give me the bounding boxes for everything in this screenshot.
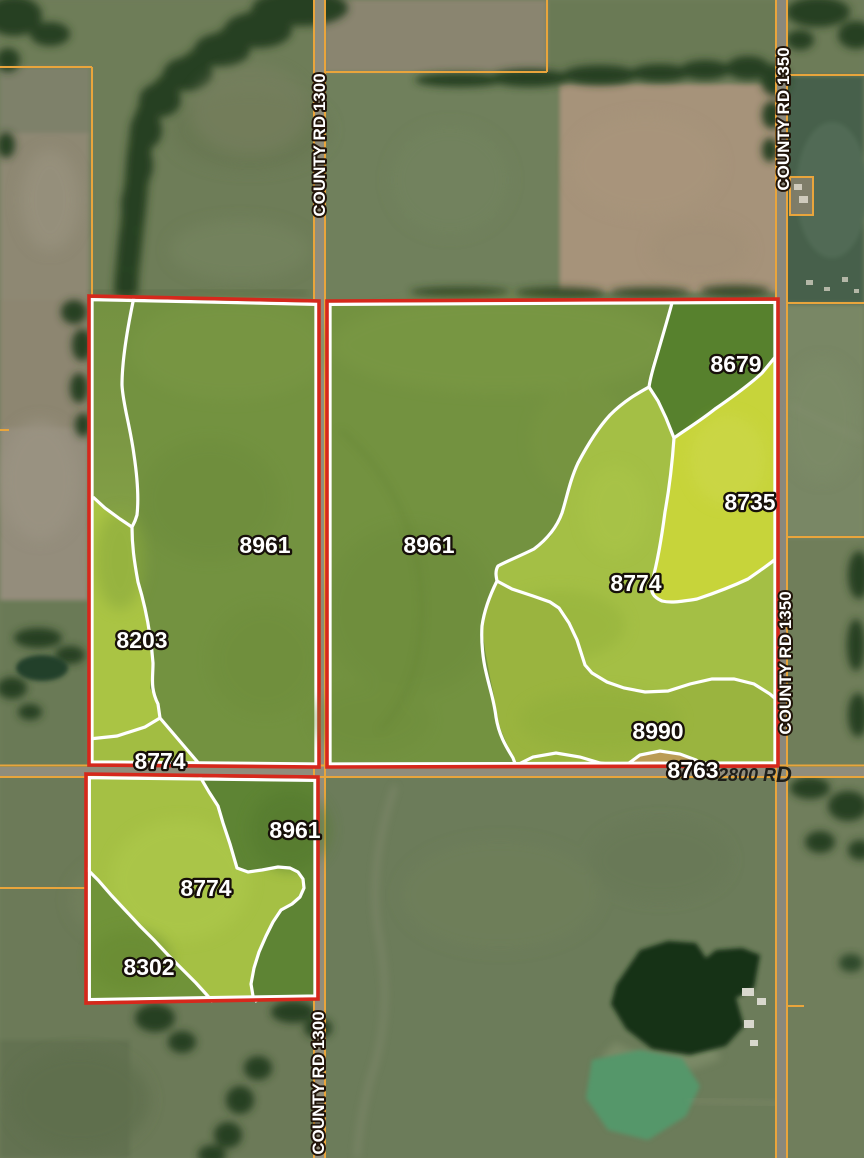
svg-text:8679: 8679 <box>710 351 761 377</box>
svg-text:8735: 8735 <box>724 489 775 515</box>
svg-text:COUNTY RD 1350: COUNTY RD 1350 <box>776 591 795 734</box>
svg-text:8302: 8302 <box>123 954 174 980</box>
svg-text:8774: 8774 <box>134 748 185 774</box>
svg-text:8961: 8961 <box>403 532 454 558</box>
svg-text:8774: 8774 <box>180 875 231 901</box>
svg-text:8203: 8203 <box>116 627 167 653</box>
svg-text:COUNTY RD 1300: COUNTY RD 1300 <box>309 1011 328 1154</box>
svg-text:8961: 8961 <box>239 532 290 558</box>
svg-text:COUNTY RD 1350: COUNTY RD 1350 <box>774 47 793 190</box>
svg-text:8774: 8774 <box>610 570 661 596</box>
svg-text:8990: 8990 <box>632 718 683 744</box>
svg-text:8763: 8763 <box>667 757 718 783</box>
svg-text:2800 RD: 2800 RD <box>717 762 792 787</box>
svg-text:COUNTY RD 1300: COUNTY RD 1300 <box>310 73 329 216</box>
svg-text:8961: 8961 <box>269 817 320 843</box>
